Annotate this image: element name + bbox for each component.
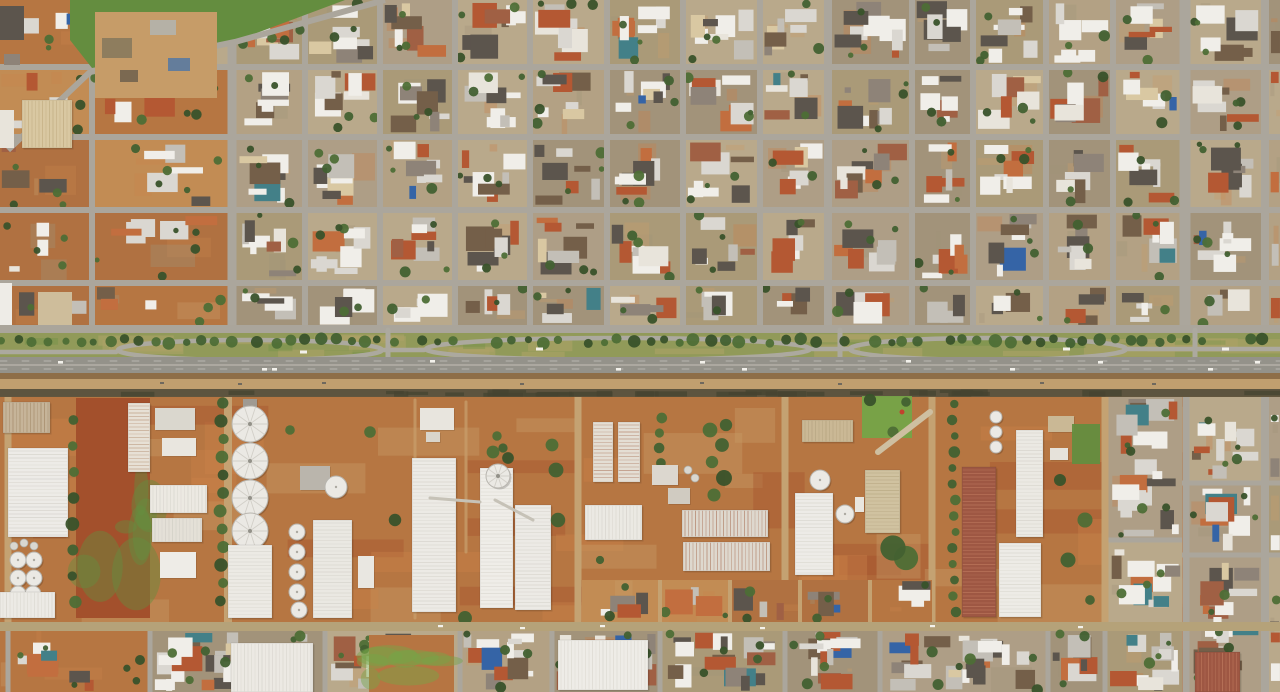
satellite-image-viewport — [0, 0, 1280, 692]
photo-tint-overlay — [0, 0, 1280, 692]
satellite-aerial-image — [0, 0, 1280, 692]
